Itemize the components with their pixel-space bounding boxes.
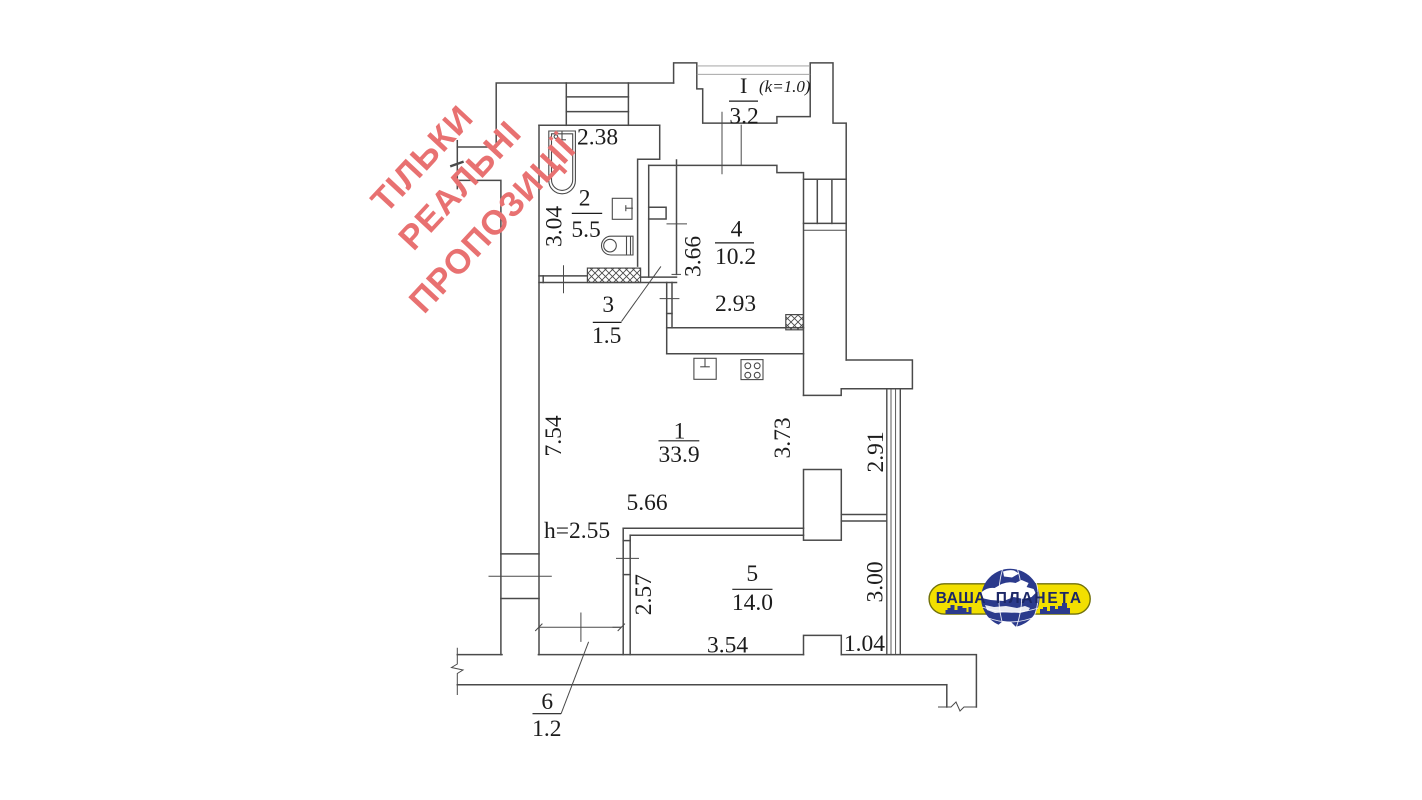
svg-text:ВАША: ВАША	[936, 590, 986, 607]
svg-text:14.0: 14.0	[732, 590, 773, 616]
svg-text:2.57: 2.57	[631, 574, 657, 615]
svg-text:5: 5	[746, 561, 758, 587]
svg-text:1: 1	[674, 419, 686, 445]
svg-text:3.00: 3.00	[863, 561, 889, 602]
svg-text:2: 2	[579, 186, 591, 212]
svg-text:3.73: 3.73	[770, 417, 796, 458]
svg-text:4: 4	[731, 217, 743, 243]
svg-text:3: 3	[602, 292, 614, 318]
svg-text:2.93: 2.93	[715, 291, 756, 317]
svg-text:1.2: 1.2	[532, 716, 561, 742]
svg-text:3.04: 3.04	[542, 206, 568, 247]
svg-text:33.9: 33.9	[658, 442, 699, 468]
svg-text:5.5: 5.5	[571, 217, 600, 243]
svg-text:3.54: 3.54	[707, 633, 748, 659]
svg-text:1.04: 1.04	[844, 631, 885, 657]
svg-text:3.66: 3.66	[681, 236, 707, 277]
svg-text:2.38: 2.38	[577, 125, 618, 151]
svg-text:5.66: 5.66	[626, 490, 667, 516]
svg-text:1.5: 1.5	[592, 323, 621, 349]
svg-text:10.2: 10.2	[715, 244, 756, 270]
svg-text:h=2.55: h=2.55	[544, 518, 610, 544]
svg-text:2.91: 2.91	[863, 431, 889, 472]
svg-text:7.54: 7.54	[541, 415, 567, 456]
svg-text:ПЛАНЕТА: ПЛАНЕТА	[996, 590, 1083, 607]
svg-text:3.2: 3.2	[729, 103, 758, 129]
svg-text:I: I	[740, 73, 747, 98]
svg-text:(k=1.0): (k=1.0)	[759, 77, 811, 96]
svg-text:6: 6	[541, 689, 553, 715]
